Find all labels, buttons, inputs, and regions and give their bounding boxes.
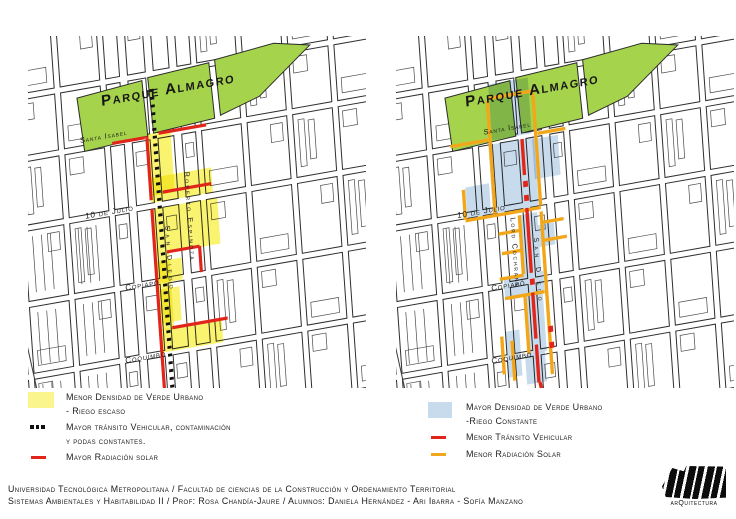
logo-arquitectura: arQuitectura: [656, 466, 732, 507]
legend-text: Menor Tránsito Vehicular: [466, 431, 572, 445]
legend-text: y podas constantes.: [66, 435, 231, 449]
red-line-symbol: [31, 456, 46, 459]
poster-page: San DiegoParque AlmagroSanta Isabel10 de…: [0, 0, 736, 519]
map-canvas: San DiegoParque AlmagroSanta Isabel10 de…: [396, 36, 734, 388]
blue-area-swatch: [428, 402, 452, 418]
legend-item: Menor Tránsito Vehicular: [428, 431, 603, 445]
map-canvas: San DiegoParque AlmagroSanta Isabel10 de…: [28, 36, 366, 388]
footer-credits: Universidad Tecnológica Metropolitana / …: [8, 483, 656, 507]
legend-item: Menor Radiación Solar: [428, 448, 603, 462]
red-line-symbol: [431, 436, 446, 439]
legend-item: Menor Densidad de Verde Urbano - Riego e…: [28, 391, 231, 418]
map-left-low-density: San DiegoParque AlmagroSanta Isabel10 de…: [28, 36, 366, 388]
orange-line-symbol: [431, 453, 446, 456]
logo-mark-stripes: [662, 466, 726, 499]
legend-text: Menor Radiación Solar: [466, 448, 561, 462]
black-dots-symbol: [30, 425, 45, 429]
legend-text: -Riego Constante: [466, 415, 603, 429]
legend-item: Mayor Densidad de Verde Urbano -Riego Co…: [428, 401, 603, 428]
legend-text: Mayor tránsito Vehicular, contaminación: [66, 421, 231, 435]
legend-right: Mayor Densidad de Verde Urbano -Riego Co…: [428, 401, 603, 464]
footer-line-2: Sistemas Ambientales y Habitabilidad II …: [8, 495, 656, 507]
footer-line-1: Universidad Tecnológica Metropolitana / …: [8, 483, 656, 495]
legend-text: - Riego escaso: [66, 405, 203, 419]
legend-text: Menor Densidad de Verde Urbano: [66, 391, 203, 405]
legend-item: Mayor Radiación solar: [28, 451, 231, 465]
legend-left: Menor Densidad de Verde Urbano - Riego e…: [28, 391, 231, 468]
logo-text: arQuitectura: [656, 500, 732, 507]
legend-item: Mayor tránsito Vehicular, contaminación …: [28, 421, 231, 448]
map-right-high-density: San DiegoParque AlmagroSanta Isabel10 de…: [396, 36, 734, 388]
yellow-area-swatch: [28, 392, 54, 408]
legend-text: Mayor Radiación solar: [66, 451, 158, 465]
legend-text: Mayor Densidad de Verde Urbano: [466, 401, 603, 415]
